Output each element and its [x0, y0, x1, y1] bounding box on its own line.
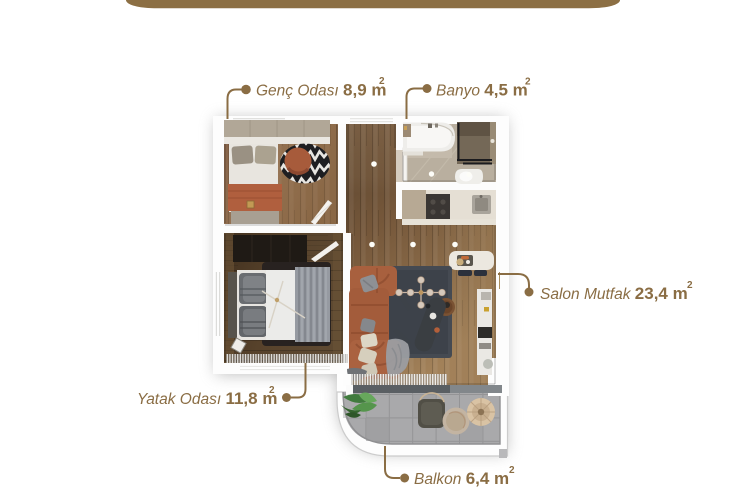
svg-text:Banyo 4,5 m: Banyo 4,5 m	[436, 80, 528, 99]
svg-text:2: 2	[379, 76, 385, 87]
svg-text:2: 2	[525, 77, 531, 88]
svg-text:Balkon 6,4 m: Balkon 6,4 m	[414, 469, 509, 488]
svg-text:2: 2	[509, 465, 515, 476]
svg-text:Yatak Odası 11,8 m: Yatak Odası 11,8 m	[137, 389, 277, 408]
svg-text:Genç Odası 8,9 m: Genç Odası 8,9 m	[256, 81, 387, 100]
svg-text:2: 2	[687, 280, 693, 291]
svg-text:Salon Mutfak 23,4 m: Salon Mutfak 23,4 m	[540, 284, 688, 303]
svg-text:2: 2	[269, 385, 275, 396]
